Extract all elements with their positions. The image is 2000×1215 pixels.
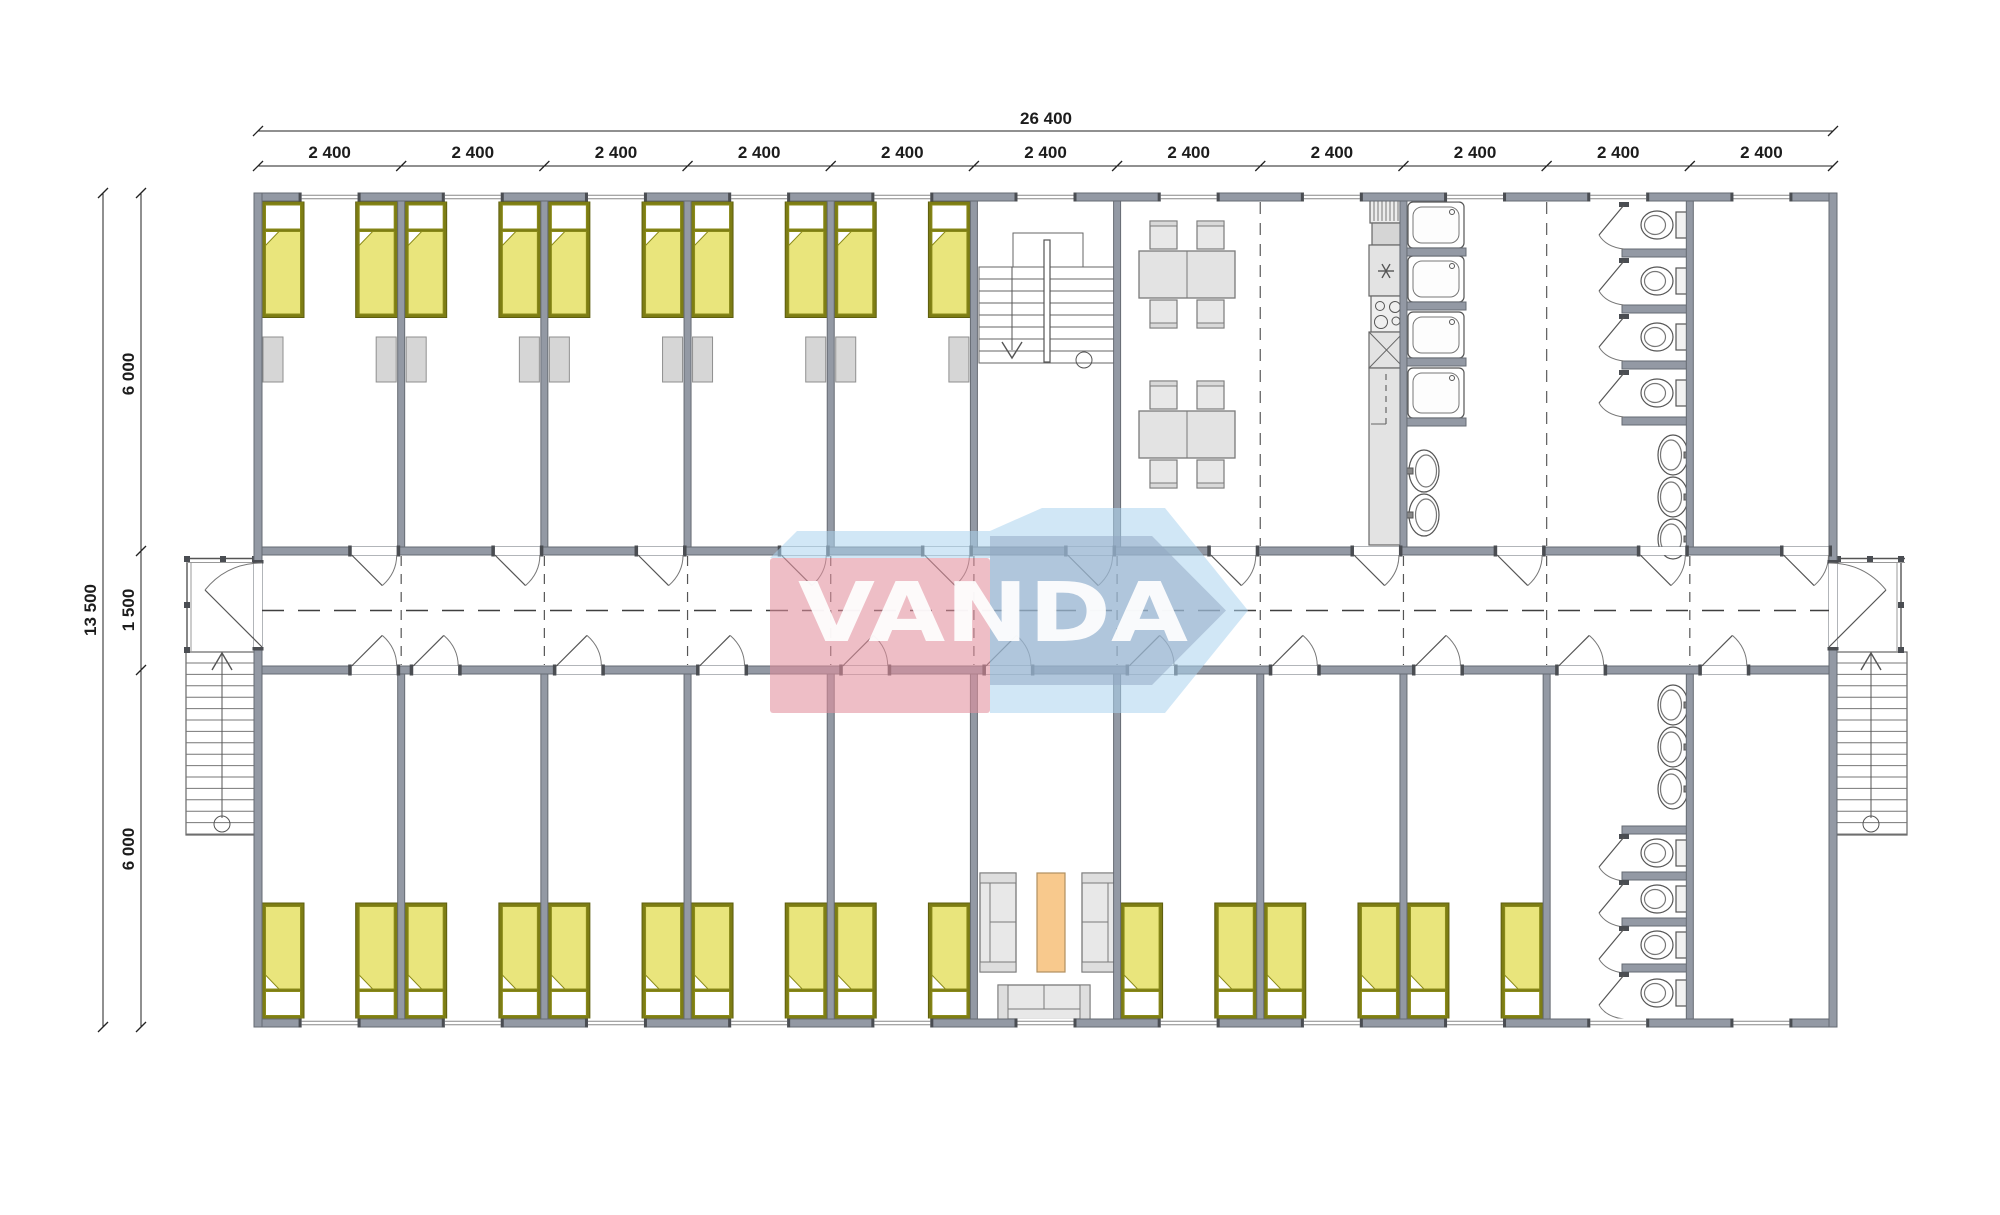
sofa-armrest: [980, 962, 1016, 972]
room-wall: [1686, 674, 1693, 1019]
window-jamb: [871, 193, 874, 202]
door-leaf: [556, 635, 587, 666]
door-jamb: [1619, 202, 1629, 207]
door: [1698, 635, 1750, 675]
dimension-label: 2 400: [308, 143, 351, 162]
bed: [262, 202, 304, 318]
door-jamb: [253, 647, 264, 651]
toilet: [1641, 839, 1690, 867]
stall-door: [1599, 370, 1629, 417]
bed: [499, 903, 541, 1019]
wc-partition-wall: [1622, 361, 1691, 369]
bed: [1407, 903, 1449, 1019]
door-leaf: [1497, 555, 1528, 586]
door-jamb: [1619, 314, 1629, 319]
room-wall: [1114, 201, 1121, 547]
chair-back: [1150, 483, 1177, 488]
bed-pillow: [932, 205, 967, 229]
bed-blanket: [1267, 907, 1302, 990]
bed-pillow: [1124, 992, 1159, 1016]
door-leaf: [638, 555, 669, 586]
wardrobe: [406, 337, 426, 382]
window: [585, 193, 647, 202]
shower-partition-wall: [1404, 418, 1466, 426]
bed-pillow: [359, 992, 394, 1016]
door-jamb: [1828, 647, 1839, 651]
room-wall: [684, 674, 691, 1019]
door: [1412, 635, 1464, 675]
shower: [1408, 256, 1464, 302]
stall-door: [1599, 972, 1629, 1019]
door-jamb: [553, 665, 557, 676]
room-wall: [1400, 201, 1407, 547]
bed-blanket: [838, 232, 873, 315]
window-jamb: [1444, 1019, 1447, 1028]
shower-partition-wall: [1404, 302, 1466, 310]
window: [1015, 193, 1077, 202]
room-wall: [684, 201, 691, 547]
door-leaf: [1599, 883, 1624, 913]
coffee-table: [1037, 873, 1065, 972]
chair-back: [1197, 323, 1224, 328]
door: [1637, 546, 1689, 586]
bed-blanket: [646, 907, 681, 990]
door: [1780, 546, 1832, 586]
railing-post: [184, 602, 190, 608]
window-jamb: [1646, 1019, 1649, 1028]
door-jamb: [1685, 546, 1689, 557]
window-jamb: [787, 1019, 790, 1028]
room-wall: [1114, 674, 1121, 1019]
room-wall: [827, 674, 834, 1019]
bed: [834, 903, 876, 1019]
window-jamb: [299, 193, 302, 202]
door: [1269, 635, 1321, 675]
sofa-armrest: [998, 985, 1008, 1019]
door-jamb: [1780, 546, 1784, 557]
door-leaf: [1354, 555, 1385, 586]
watermark-top-face: [770, 531, 990, 558]
bed-pillow: [1410, 992, 1445, 1016]
stairwell-group: [979, 233, 1114, 368]
window-jamb: [930, 193, 933, 202]
wc-room-bottom: [1599, 685, 1691, 1019]
exterior-stairs-right: [1833, 556, 1907, 835]
wardrobe: [376, 337, 396, 382]
door-jamb: [1317, 665, 1321, 676]
door-leaf: [1599, 929, 1624, 959]
chair: [1150, 460, 1177, 488]
bed-pillow: [359, 205, 394, 229]
sofa-armrest: [980, 873, 1016, 883]
bed-blanket: [1505, 907, 1540, 990]
wc-partition-wall: [1622, 872, 1691, 880]
wardrobe: [519, 337, 539, 382]
door-jamb: [397, 665, 401, 676]
dimension-label: 2 400: [1024, 143, 1067, 162]
window-jamb: [787, 193, 790, 202]
dimension-label: 2 400: [1597, 143, 1640, 162]
bed-pillow: [408, 205, 443, 229]
toilet: [1641, 323, 1690, 351]
chair: [1150, 221, 1177, 249]
door-jamb: [491, 546, 495, 557]
door-jamb: [1207, 546, 1211, 557]
window: [728, 193, 790, 202]
window: [299, 1019, 361, 1028]
chair: [1197, 460, 1224, 488]
bed-pillow: [838, 205, 873, 229]
room-wall: [541, 674, 548, 1019]
window-jamb: [1587, 1019, 1590, 1028]
window: [1587, 1019, 1649, 1028]
bed-blanket: [502, 907, 537, 990]
floor-plan-page: 26 4002 4002 4002 4002 4002 4002 4002 40…: [0, 0, 2000, 1215]
window: [871, 193, 933, 202]
bed: [691, 903, 733, 1019]
wash-basin: [1405, 450, 1439, 492]
bed-pillow: [789, 992, 824, 1016]
bed-pillow: [932, 992, 967, 1016]
railing-post: [1867, 556, 1873, 562]
chair: [1197, 221, 1224, 249]
bed-pillow: [551, 205, 586, 229]
bed: [928, 202, 970, 318]
bed-blanket: [266, 232, 301, 315]
dimension-label: 2 400: [1311, 143, 1354, 162]
window-jamb: [644, 1019, 647, 1028]
bed-blanket: [646, 232, 681, 315]
window: [442, 1019, 504, 1028]
door-jamb: [1604, 665, 1608, 676]
window-jamb: [1646, 193, 1649, 202]
sofa: [998, 985, 1090, 1019]
wardrobe: [549, 337, 569, 382]
door-jamb: [1399, 546, 1403, 557]
door-jamb: [1619, 834, 1629, 839]
window-jamb: [728, 1019, 731, 1028]
wardrobe: [663, 337, 683, 382]
door-jamb: [348, 546, 352, 557]
door-leaf: [1599, 837, 1624, 867]
bed-blanket: [1410, 907, 1445, 990]
sofa: [1082, 873, 1118, 972]
door-jamb: [1555, 665, 1559, 676]
door: [553, 635, 605, 675]
shower: [1408, 312, 1464, 358]
stove: [1371, 296, 1404, 332]
door-jamb: [410, 665, 414, 676]
bed-blanket: [551, 232, 586, 315]
door-leaf: [1559, 635, 1590, 666]
chair-back: [1197, 483, 1224, 488]
window-jamb: [585, 193, 588, 202]
door-leaf: [1415, 635, 1446, 666]
bed-blanket: [359, 907, 394, 990]
toilet: [1641, 931, 1690, 959]
door-jamb: [696, 665, 700, 676]
bed-pillow: [1267, 992, 1302, 1016]
door: [1555, 635, 1607, 675]
bed-blanket: [789, 907, 824, 990]
dimension-label: 13 500: [81, 584, 100, 636]
shower-group: [1404, 202, 1466, 536]
bed-blanket: [551, 907, 586, 990]
bed-pillow: [1505, 992, 1540, 1016]
railing-post: [184, 556, 190, 562]
window-jamb: [501, 193, 504, 202]
sofa-armrest: [1080, 985, 1090, 1019]
door-leaf: [495, 555, 526, 586]
window: [1301, 193, 1363, 202]
bed: [1358, 903, 1400, 1019]
bed-blanket: [1218, 907, 1253, 990]
kitchen-worktop: [1369, 368, 1404, 545]
railing-post: [1898, 602, 1904, 608]
wc-partition-wall: [1622, 918, 1691, 926]
bed: [405, 202, 447, 318]
bed-blanket: [838, 907, 873, 990]
bed-pillow: [266, 205, 301, 229]
toilet: [1641, 267, 1690, 295]
bed-blanket: [789, 232, 824, 315]
dimension-label: 2 400: [1167, 143, 1210, 162]
bed: [262, 903, 304, 1019]
bed-pillow: [1361, 992, 1396, 1016]
chair-back: [1150, 221, 1177, 226]
dimension-label: 1 500: [119, 589, 138, 632]
window-jamb: [1301, 193, 1304, 202]
dimension-label: 6 000: [119, 828, 138, 871]
bed: [928, 903, 970, 1019]
bed-blanket: [408, 232, 443, 315]
wc-room-top: [1599, 202, 1691, 559]
door-leaf: [413, 635, 444, 666]
bed-blanket: [932, 232, 967, 315]
bed-pillow: [551, 992, 586, 1016]
window-jamb: [1217, 193, 1220, 202]
wc-partition-wall: [1622, 417, 1691, 425]
appliance: [1372, 223, 1401, 245]
window-jamb: [1730, 193, 1733, 202]
window: [442, 193, 504, 202]
door-leaf: [1640, 555, 1671, 586]
bed-pillow: [695, 205, 730, 229]
window-jamb: [1444, 193, 1447, 202]
window-jamb: [644, 193, 647, 202]
sofa-armrest: [1082, 962, 1118, 972]
window-jamb: [1503, 1019, 1506, 1028]
dimension-label: 2 400: [881, 143, 924, 162]
window-jamb: [585, 1019, 588, 1028]
bed: [499, 202, 541, 318]
bed: [1501, 903, 1543, 1019]
wardrobe: [949, 337, 969, 382]
bed-pillow: [789, 205, 824, 229]
bed: [642, 202, 684, 318]
room-wall: [541, 201, 548, 547]
window: [1015, 1019, 1077, 1028]
window-jamb: [1360, 193, 1363, 202]
dimension-label: 2 400: [1740, 143, 1783, 162]
bed-blanket: [1361, 907, 1396, 990]
dining-table-set: [1139, 251, 1235, 298]
window: [1158, 193, 1220, 202]
door-jamb: [1747, 665, 1751, 676]
window-jamb: [299, 1019, 302, 1028]
door-jamb: [348, 665, 352, 676]
window-jamb: [1789, 193, 1792, 202]
window-jamb: [442, 1019, 445, 1028]
window-jamb: [1217, 1019, 1220, 1028]
shower: [1408, 368, 1464, 418]
door-leaf: [1599, 373, 1624, 403]
fridge: [1370, 197, 1403, 245]
bed-blanket: [408, 907, 443, 990]
wc-partition-wall: [1622, 964, 1691, 972]
window-jamb: [1015, 193, 1018, 202]
chair-back: [1197, 381, 1224, 386]
door-jamb: [458, 665, 462, 676]
door: [635, 546, 687, 586]
dimension-label: 26 400: [1020, 109, 1072, 128]
window-jamb: [358, 193, 361, 202]
bed-blanket: [359, 232, 394, 315]
stall-door: [1599, 314, 1629, 361]
door: [1350, 546, 1402, 586]
door-leaf: [352, 635, 383, 666]
chair-back: [1197, 221, 1224, 226]
window: [585, 1019, 647, 1028]
lounge-group: [980, 873, 1118, 1019]
window-jamb: [1503, 193, 1506, 202]
door-leaf: [1829, 590, 1886, 647]
toilet: [1641, 211, 1690, 239]
bed: [356, 903, 398, 1019]
door-leaf: [1599, 975, 1624, 1005]
door-jamb: [683, 546, 687, 557]
window-jamb: [728, 193, 731, 202]
bed-pillow: [838, 992, 873, 1016]
door-jamb: [1412, 665, 1416, 676]
door-jamb: [601, 665, 605, 676]
bed-pillow: [408, 992, 443, 1016]
door-leaf: [700, 635, 731, 666]
bed-pillow: [646, 205, 681, 229]
door-jamb: [540, 546, 544, 557]
door-leaf: [1599, 261, 1624, 291]
room-wall: [398, 201, 405, 547]
bed: [548, 903, 590, 1019]
bed-pillow: [1218, 992, 1253, 1016]
dining-table-set: [1139, 411, 1235, 458]
window-jamb: [501, 1019, 504, 1028]
chair: [1197, 381, 1224, 409]
window: [1301, 1019, 1363, 1028]
room-wall: [1543, 674, 1550, 1019]
chair-back: [1150, 323, 1177, 328]
toilet: [1641, 979, 1690, 1007]
bed: [642, 903, 684, 1019]
room-wall: [1686, 201, 1693, 547]
watermark-logo: VANDA: [770, 508, 1248, 713]
chair: [1150, 381, 1177, 409]
door-leaf: [1784, 555, 1815, 586]
stair-handrail: [1044, 240, 1050, 362]
window: [728, 1019, 790, 1028]
bed-pillow: [646, 992, 681, 1016]
bed-blanket: [502, 232, 537, 315]
railing-post: [1898, 556, 1904, 562]
door-leaf: [205, 590, 262, 647]
stall-door: [1599, 258, 1629, 305]
wc-partition-wall: [1622, 826, 1691, 834]
bed-blanket: [695, 907, 730, 990]
door-jamb: [1619, 880, 1629, 885]
door-jamb: [1637, 546, 1641, 557]
wc-partition-wall: [1622, 305, 1691, 313]
door-leaf: [1702, 635, 1733, 666]
window-jamb: [930, 1019, 933, 1028]
bed: [691, 202, 733, 318]
door-leaf: [352, 555, 383, 586]
wardrobe: [836, 337, 856, 382]
kitchen-group: [1369, 197, 1404, 545]
door-jamb: [1256, 546, 1260, 557]
bed: [356, 202, 398, 318]
door-jamb: [1619, 926, 1629, 931]
bed-blanket: [1124, 907, 1159, 990]
window-jamb: [1730, 1019, 1733, 1028]
stair-start-marker: [1076, 352, 1092, 368]
shower-partition-wall: [1404, 248, 1466, 256]
door-jamb: [635, 546, 639, 557]
bed: [548, 202, 590, 318]
window-jamb: [1158, 1019, 1161, 1028]
bed: [785, 903, 827, 1019]
toilet: [1641, 885, 1690, 913]
door-leaf: [1599, 317, 1624, 347]
floor-plan-drawing: 26 4002 4002 4002 4002 4002 4002 4002 40…: [0, 0, 2000, 1215]
door: [1494, 546, 1546, 586]
watermark-text: VANDA: [798, 566, 1189, 661]
window: [1730, 1019, 1792, 1028]
dimension-label: 2 400: [451, 143, 494, 162]
room-wall: [1400, 674, 1407, 1019]
room-wall: [970, 674, 977, 1019]
door-jamb: [1350, 546, 1354, 557]
window: [299, 193, 361, 202]
shower: [1408, 202, 1464, 248]
sofa: [980, 873, 1016, 972]
wardrobe: [263, 337, 283, 382]
sink-unit: [1369, 332, 1404, 368]
stall-door: [1599, 202, 1629, 249]
window-jamb: [871, 1019, 874, 1028]
door-jamb: [1619, 972, 1629, 977]
window-jamb: [1587, 193, 1590, 202]
bed: [785, 202, 827, 318]
door-jamb: [1542, 546, 1546, 557]
window-jamb: [358, 1019, 361, 1028]
door: [696, 635, 748, 675]
shower-partition-wall: [1404, 358, 1466, 366]
bed-pillow: [502, 205, 537, 229]
door-leaf: [1599, 205, 1624, 235]
railing-post: [184, 647, 190, 653]
entrance-door: [1828, 560, 1887, 651]
window: [1444, 1019, 1506, 1028]
